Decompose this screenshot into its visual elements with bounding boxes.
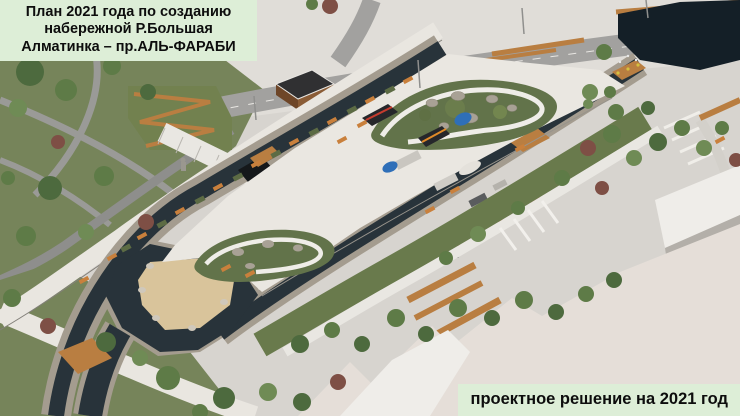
architectural-render: План 2021 года по созданию набережной Р.… <box>0 0 740 416</box>
plan-title-line-3: Алматинка – пр.АЛЬ-ФАРАБИ <box>6 39 251 56</box>
solution-caption-label: проектное решение на 2021 год <box>458 384 740 416</box>
aerial-render-svg <box>0 0 740 416</box>
plan-title-label: План 2021 года по созданию набережной Р.… <box>0 0 257 61</box>
plan-title-line-1: План 2021 года по созданию <box>6 4 251 21</box>
statue <box>181 158 187 172</box>
plan-title-line-2: набережной Р.Большая <box>6 21 251 38</box>
